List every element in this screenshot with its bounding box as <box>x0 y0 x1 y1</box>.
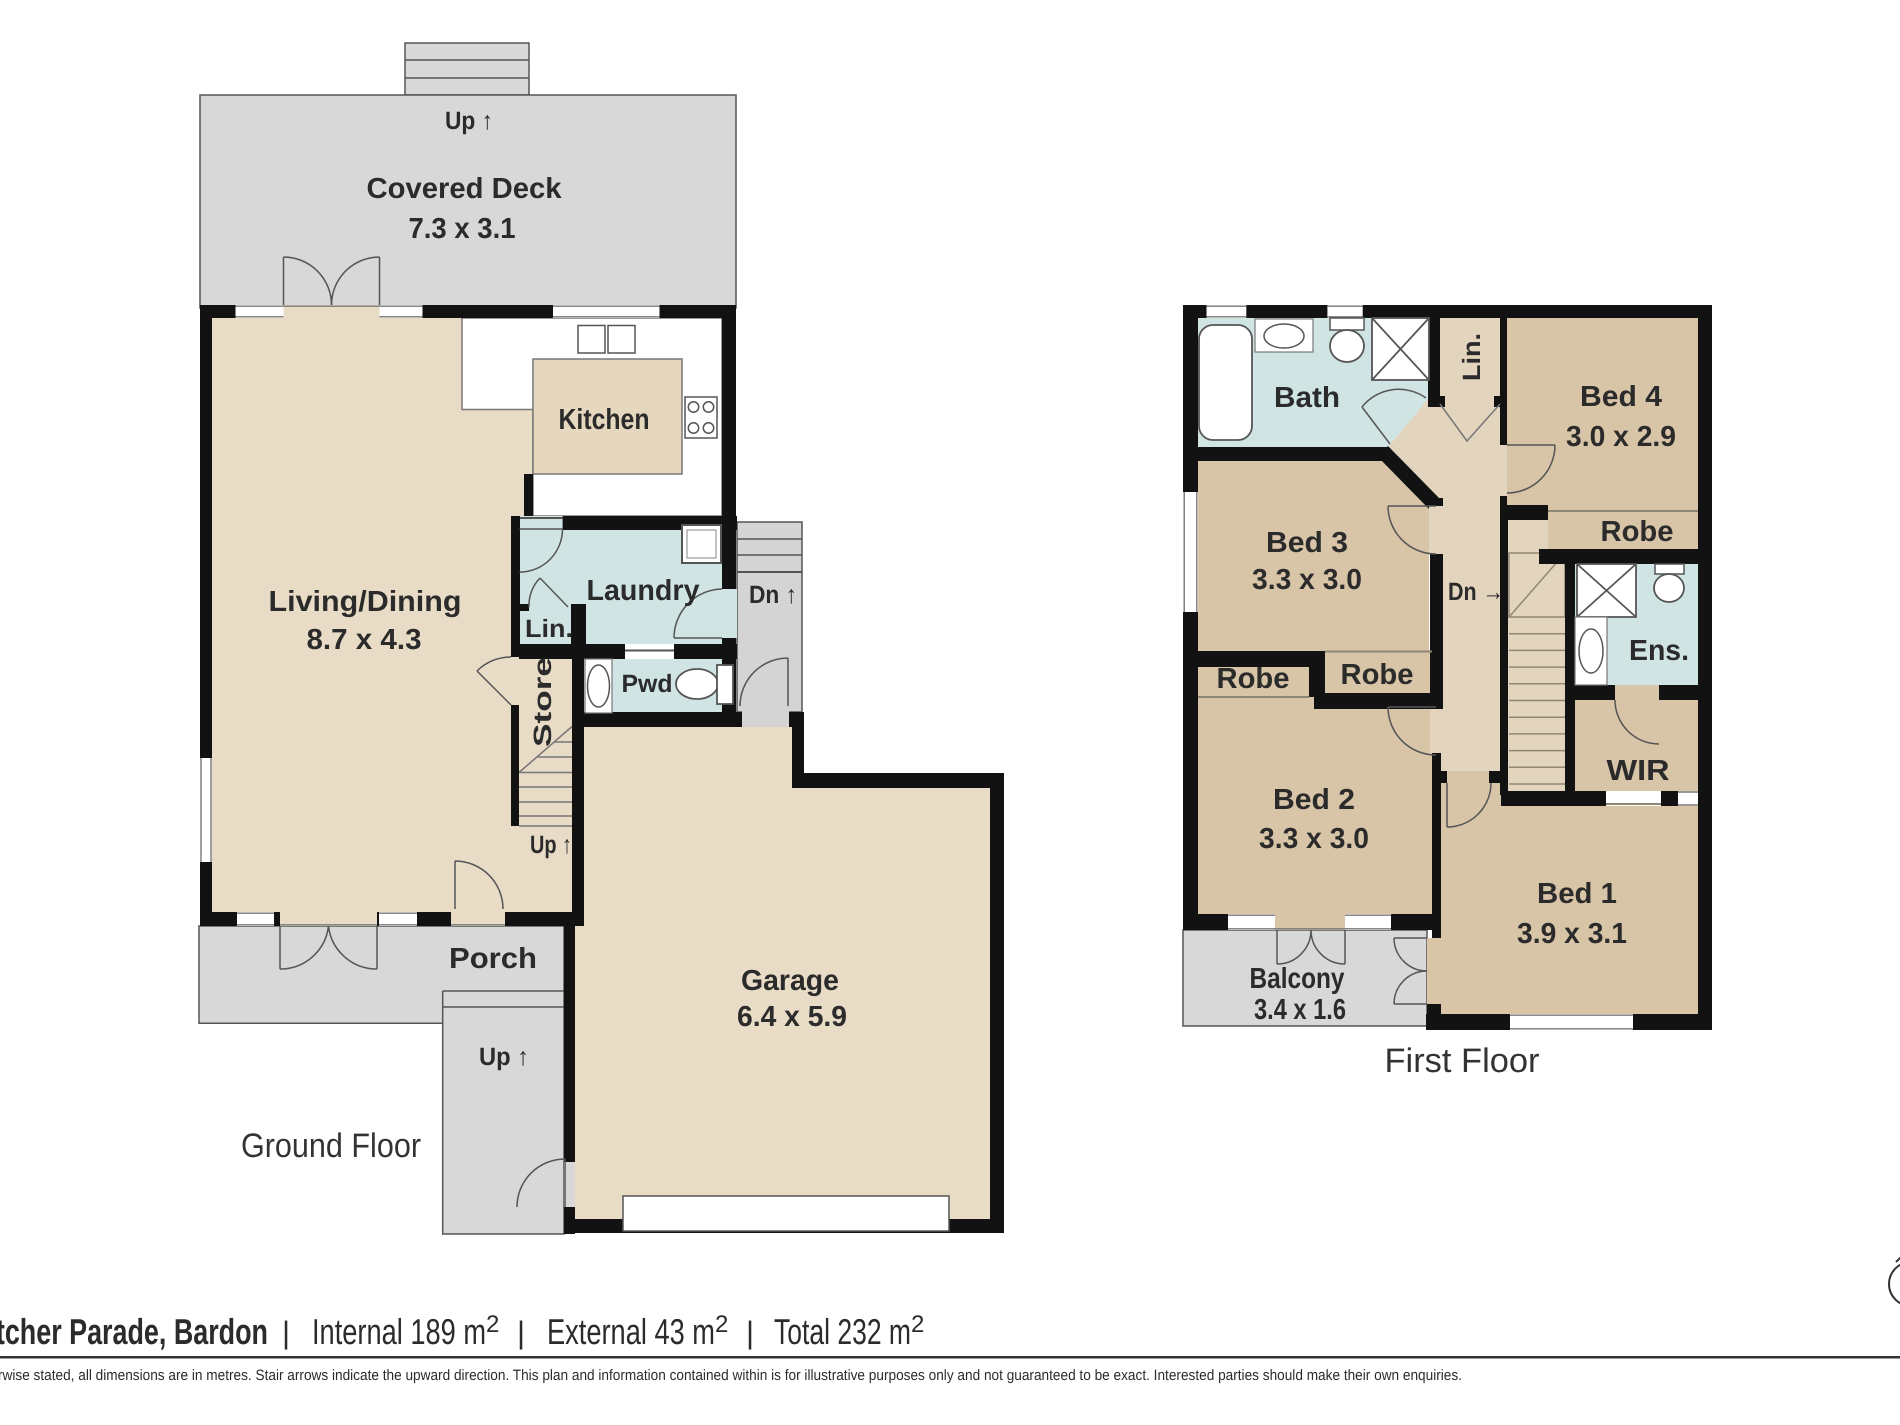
svg-text:Up ↑: Up ↑ <box>445 107 493 135</box>
svg-text:Fletcher Parade, Bardon: Fletcher Parade, Bardon <box>0 1311 268 1352</box>
svg-text:Robe: Robe <box>1217 663 1290 695</box>
svg-text:7.3 x 3.1: 7.3 x 3.1 <box>409 213 516 245</box>
svg-text:Total 232 m: Total 232 m <box>774 1311 911 1352</box>
svg-text:Bed 4: Bed 4 <box>1580 381 1662 413</box>
svg-text:2: 2 <box>715 1311 728 1338</box>
svg-text:Living/Dining: Living/Dining <box>269 586 462 618</box>
svg-text:3.0 x 2.9: 3.0 x 2.9 <box>1566 421 1676 453</box>
svg-text:Lin.: Lin. <box>525 615 573 643</box>
svg-text:|: | <box>746 1315 754 1350</box>
svg-text:Dn →: Dn → <box>1448 578 1504 606</box>
svg-text:Robe: Robe <box>1341 659 1414 691</box>
svg-text:Garage: Garage <box>741 965 839 997</box>
svg-text:Bed 1: Bed 1 <box>1537 878 1617 910</box>
svg-text:3.3 x 3.0: 3.3 x 3.0 <box>1252 564 1362 596</box>
svg-text:|: | <box>282 1315 290 1350</box>
svg-text:Balcony: Balcony <box>1250 963 1345 995</box>
svg-text:2: 2 <box>486 1311 499 1338</box>
svg-text:Unless otherwise stated, all d: Unless otherwise stated, all dimensions … <box>0 1367 1462 1384</box>
svg-text:Dn ↑: Dn ↑ <box>749 581 797 609</box>
svg-text:3.3 x 3.0: 3.3 x 3.0 <box>1259 823 1369 855</box>
svg-text:External 43 m: External 43 m <box>547 1311 715 1352</box>
svg-text:3.4 x 1.6: 3.4 x 1.6 <box>1254 994 1346 1026</box>
svg-text:6.4 x 5.9: 6.4 x 5.9 <box>737 1001 847 1033</box>
svg-text:2: 2 <box>911 1311 924 1338</box>
svg-text:Kitchen: Kitchen <box>559 404 650 436</box>
svg-text:3.9 x 3.1: 3.9 x 3.1 <box>1517 918 1627 950</box>
svg-text:Laundry: Laundry <box>587 575 700 607</box>
svg-text:Bed 3: Bed 3 <box>1266 527 1348 559</box>
svg-text:Bed 2: Bed 2 <box>1273 784 1355 816</box>
svg-text:Up ↑: Up ↑ <box>479 1043 529 1071</box>
svg-text:Covered Deck: Covered Deck <box>367 173 563 205</box>
svg-text:Ground Floor: Ground Floor <box>241 1127 421 1165</box>
svg-text:Store: Store <box>529 657 557 747</box>
svg-text:Pwd: Pwd <box>622 670 673 698</box>
svg-text:Ens.: Ens. <box>1629 635 1689 667</box>
svg-text:Porch: Porch <box>449 943 537 975</box>
svg-text:WIR: WIR <box>1607 755 1670 787</box>
svg-text:Up ↑: Up ↑ <box>530 831 572 859</box>
svg-text:|: | <box>517 1315 525 1350</box>
svg-text:Robe: Robe <box>1601 516 1674 548</box>
svg-text:Internal 189 m: Internal 189 m <box>312 1311 486 1352</box>
svg-text:First Floor: First Floor <box>1385 1042 1540 1080</box>
svg-text:Bath: Bath <box>1274 382 1340 414</box>
svg-text:Lin.: Lin. <box>1458 333 1486 381</box>
svg-text:8.7 x 4.3: 8.7 x 4.3 <box>307 624 422 656</box>
